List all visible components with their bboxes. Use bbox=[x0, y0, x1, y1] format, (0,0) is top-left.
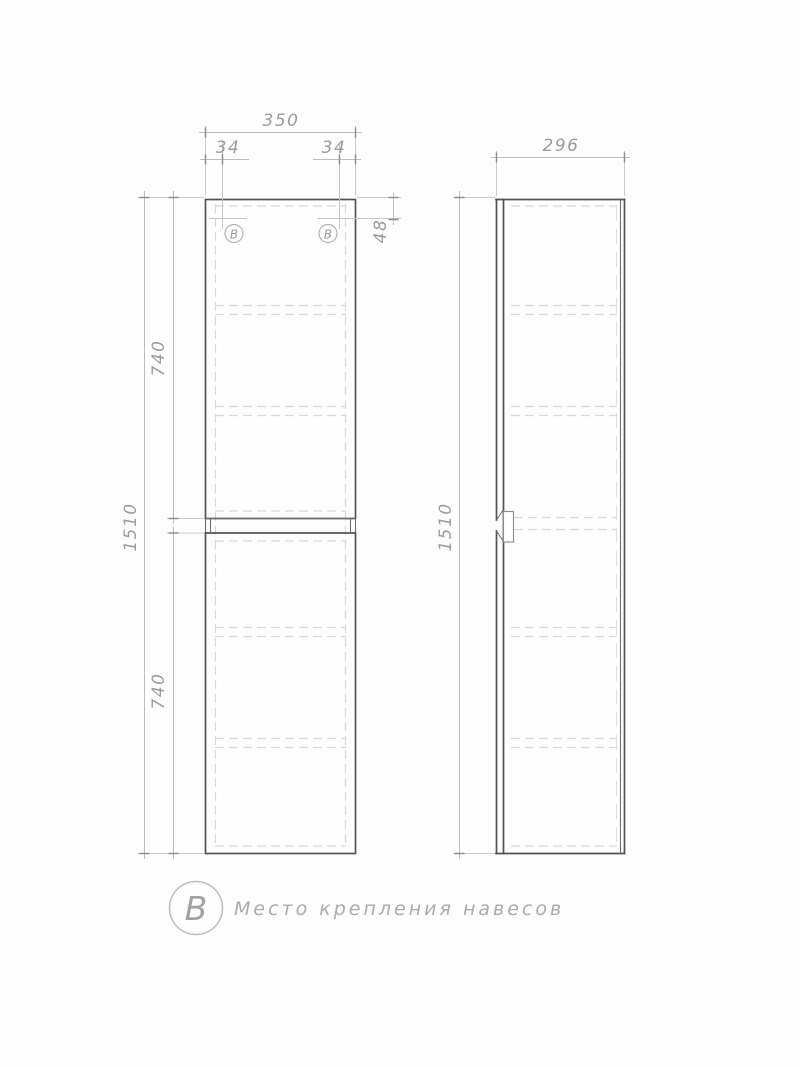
dim-text-296: 296 bbox=[543, 136, 580, 156]
legend-symbol: В bbox=[185, 889, 208, 928]
legend: В Место крепления навесов bbox=[170, 882, 565, 935]
side-view: 296 1510 bbox=[436, 136, 630, 859]
side-dimensions: 296 1510 bbox=[436, 136, 630, 859]
dim-text-1510-side: 1510 bbox=[436, 502, 456, 551]
dim-text-34-left: 34 bbox=[216, 138, 241, 158]
hanger-marker-label-left: В bbox=[230, 228, 238, 242]
front-upper-door bbox=[206, 200, 356, 519]
dim-text-48: 48 bbox=[371, 219, 391, 244]
front-view: В В 350 34 34 bbox=[121, 111, 401, 859]
side-lower-door-chamfer bbox=[497, 531, 504, 542]
hanger-marker-label-right: В bbox=[324, 228, 332, 242]
technical-drawing-page: В В 350 34 34 bbox=[0, 0, 800, 1067]
side-middle-rail bbox=[504, 512, 514, 543]
legend-label: Место крепления навесов bbox=[234, 898, 564, 920]
side-upper-door-chamfer bbox=[497, 510, 504, 521]
front-hidden-lines bbox=[215, 204, 346, 848]
dim-text-34-right: 34 bbox=[322, 138, 347, 158]
front-dimensions: 350 34 34 48 1510 bbox=[121, 111, 401, 859]
dim-text-740-upper: 740 bbox=[149, 340, 169, 377]
dim-text-1510-front: 1510 bbox=[121, 502, 141, 551]
front-lower-door bbox=[206, 533, 356, 854]
dim-text-740-lower: 740 bbox=[149, 673, 169, 710]
cabinet-drawing: В В 350 34 34 bbox=[0, 0, 800, 1067]
front-middle-band bbox=[206, 519, 356, 534]
side-hidden-lines bbox=[511, 206, 617, 846]
dim-text-350: 350 bbox=[263, 111, 300, 131]
